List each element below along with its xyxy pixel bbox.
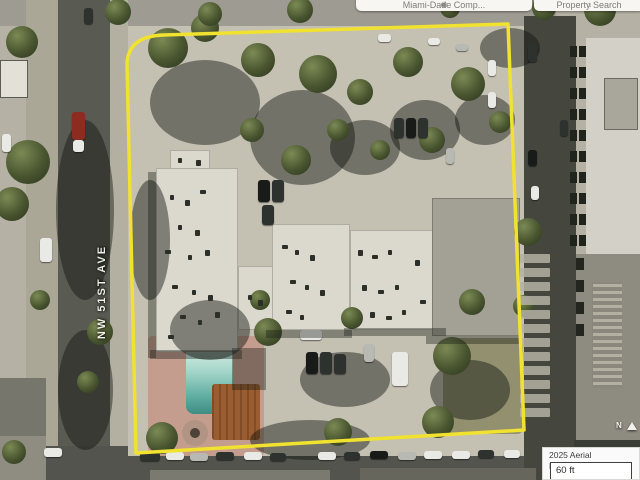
street-label: NW 51ST AVE	[96, 222, 116, 362]
tab-label: Miami-Dade Comp...	[403, 0, 486, 10]
tab-miami-dade-comparables[interactable]: ◉ Miami-Dade Comp...	[356, 0, 532, 11]
tab-property-search[interactable]: ⌂ Property Search	[534, 0, 640, 11]
north-indicator: N	[616, 422, 638, 448]
scale-label: 60 ft	[556, 465, 575, 476]
north-label: N	[616, 422, 622, 430]
tab-label: Property Search	[556, 0, 621, 10]
property-boundary	[127, 24, 524, 453]
aerial-map[interactable]: NW 51ST AVE ◉ Miami-Dade Comp... ⌂ Prope…	[0, 0, 640, 480]
north-arrow-icon	[627, 422, 637, 430]
map-scale-bar: 60 ft	[550, 462, 632, 479]
